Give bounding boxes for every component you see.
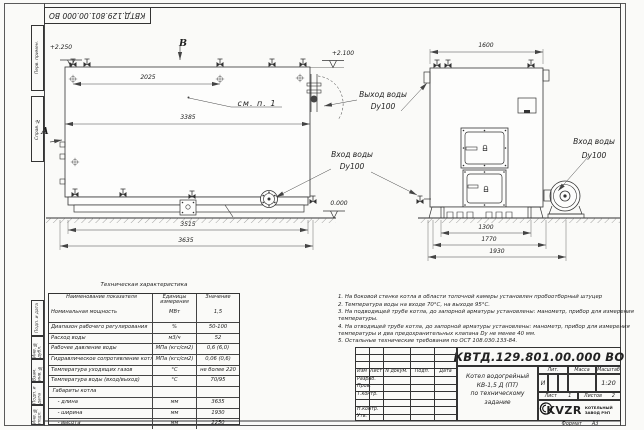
table-row: Рабочее давление водыМПа (кгс/см2)0,6 (6… <box>49 343 239 354</box>
note-line: 4. На отводящей трубе котла, до запорной… <box>338 324 634 338</box>
table-cell: Габариты котла <box>49 387 153 397</box>
format-value: А3 <box>592 421 599 427</box>
sheet-value: 1 <box>568 394 571 399</box>
lit-empty-cell-1 <box>548 374 558 392</box>
table-cell: 52 <box>197 334 239 344</box>
table-cell: 70/95 <box>197 376 239 386</box>
lit-value-cell: И <box>538 374 548 392</box>
mass-header-cell: Масса <box>568 366 596 374</box>
dim-label-1770: 1770 <box>469 237 509 243</box>
tb-col-list: Лист <box>369 370 383 375</box>
table-cell: Температура воды (вход/выход) <box>49 376 153 386</box>
note-line: 3. На подводящей трубе котла, до запорно… <box>338 309 634 323</box>
sheet-cell: Лист 1 <box>538 392 578 400</box>
table-cell: Диапазон рабочего регулирования <box>49 323 153 333</box>
table-row: Диапазон рабочего регулирования%50-100 <box>49 322 239 333</box>
callout-see-item-1: см. п. 1 <box>226 99 288 108</box>
spec-header-value: Значение <box>197 294 239 308</box>
logo-caption: КОТЕЛЬНЫЙ ЗАВОД РЭП <box>585 406 613 415</box>
dim-label-3635: 3635 <box>166 238 206 244</box>
tb-col-ndokum: N докум. <box>383 370 410 375</box>
notes-list: 1. На боковой стенке котла в области топ… <box>338 294 634 346</box>
spec-table: Наименование показателя Единицы измерени… <box>48 293 240 425</box>
water-outlet-label: Выход воды <box>352 91 414 99</box>
spec-table-title: Техническая характеристика <box>48 283 240 289</box>
table-cell: м3/ч <box>153 334 197 344</box>
sheets-value: 2 <box>612 394 615 399</box>
dim-label-1300: 1300 <box>466 225 506 231</box>
view-label-b: В <box>176 38 190 49</box>
table-cell: 1,5 <box>197 308 239 322</box>
table-row: Габариты котла <box>49 386 239 397</box>
side-view <box>46 59 343 223</box>
scale-header-cell: Масштаб <box>596 366 621 374</box>
table-row: Номинальная мощностьМВт1,5 <box>49 308 239 322</box>
table-cell <box>153 387 197 397</box>
format-label: Формат <box>562 421 582 427</box>
spec-header-units: Единицы измерения <box>153 294 197 308</box>
table-cell: 50-100 <box>197 323 239 333</box>
table-cell: °С <box>153 366 197 376</box>
fan-blower-icon <box>544 181 584 218</box>
product-name-line3: по техническому задание <box>458 390 537 407</box>
water-outlet-dn-label: Dy100 <box>352 103 414 111</box>
tb-row-nkontr: Н.контр. <box>357 408 378 413</box>
note-line: 5. Остальные технические требования по О… <box>338 338 634 345</box>
margin-box-podp-data-1: Подп. и дата <box>31 300 44 336</box>
table-cell: Рабочее давление воды <box>49 344 153 354</box>
format-strip: Формат А3 <box>540 421 620 427</box>
dim-label-2025: 2025 <box>128 75 168 81</box>
tb-row-tkontr: Т.контр. <box>357 393 378 398</box>
spec-header-name: Наименование показателя <box>49 294 153 308</box>
margin-box-inv-podl: Инв. № подл. <box>31 405 44 425</box>
sheets-cell: Листов 2 <box>578 392 621 400</box>
table-cell: °С <box>153 376 197 386</box>
table-cell: Гидравлическое сопротивление котла <box>49 355 153 365</box>
elevation-label-top-left: +2.250 <box>44 45 78 51</box>
table-row: Температура уходящих газов°Сне более 220 <box>49 365 239 376</box>
tb-col-podp: Подп. <box>410 370 434 375</box>
table-cell: Расход воды <box>49 334 153 344</box>
table-cell: 3635 <box>197 398 239 408</box>
tb-col-izm: Изм <box>355 370 369 375</box>
spec-table-header: Наименование показателя Единицы измерени… <box>49 294 239 308</box>
tb-row-utv: Утв. <box>357 415 367 420</box>
kvzr-logo-icon <box>539 401 553 416</box>
product-name-cell: Котел водогрейный КВ-1,5 Д (ПТ) по техни… <box>457 366 538 421</box>
logo-cell: KVZR КОТЕЛЬНЫЙ ЗАВОД РЭП <box>538 400 621 421</box>
sheets-label: Листов <box>584 394 602 399</box>
table-cell: - высота <box>49 419 153 429</box>
title-block-designation: КВТД.129.801.00.000 ВО <box>454 350 625 364</box>
elevation-label-zero: 0.000 <box>322 201 356 207</box>
table-cell: % <box>153 323 197 333</box>
table-cell: Номинальная мощность <box>49 308 153 322</box>
table-cell <box>197 387 239 397</box>
margin-box-inv-dubl: Инв. № дубл. <box>31 336 44 359</box>
tb-row-razrab: Разраб. <box>357 378 376 383</box>
margin-box-sprav-no: Справ. № <box>31 96 44 162</box>
table-row: Расход водым3/ч52 <box>49 333 239 344</box>
inverted-designation-box: КВТД.129.801.00.000 ВО <box>44 7 151 24</box>
table-row: - высотамм2250 <box>49 418 239 429</box>
water-inlet-right-label: Вход воды <box>566 138 622 146</box>
table-cell: мм <box>153 419 197 429</box>
dim-label-3385: 3385 <box>168 115 208 121</box>
inverted-designation-text: КВТД.129.801.00.000 ВО <box>49 11 145 20</box>
elevation-label-top-right: +2.100 <box>326 51 360 57</box>
title-block-designation-cell: КВТД.129.801.00.000 ВО <box>457 347 621 366</box>
sheet-label: Лист <box>545 394 557 399</box>
table-cell: МПа (кгс/см2) <box>153 355 197 365</box>
dim-label-1600: 1600 <box>466 43 506 49</box>
table-cell: не более 220 <box>197 366 239 376</box>
water-inlet-left-dn-label: Dy100 <box>324 163 380 171</box>
table-row: Гидравлическое сопротивление котлаМПа (к… <box>49 354 239 365</box>
table-row: Температура воды (вход/выход)°С70/95 <box>49 375 239 386</box>
lit-empty-cell-2 <box>558 374 568 392</box>
table-cell: 2250 <box>197 419 239 429</box>
water-inlet-left-label: Вход воды <box>324 151 380 159</box>
mass-value-cell <box>568 374 596 392</box>
note-line: 1. На боковой стенке котла в области топ… <box>338 294 634 301</box>
table-cell: мм <box>153 409 197 419</box>
table-cell: МПа (кгс/см2) <box>153 344 197 354</box>
tb-row-prov: Пров. <box>357 385 371 390</box>
margin-box-perv-primen: Перв. примен. <box>31 25 44 91</box>
table-cell: - ширина <box>49 409 153 419</box>
table-cell: 1930 <box>197 409 239 419</box>
lit-header-cell: Лит. <box>538 366 568 374</box>
table-cell: 0,6 (6,0) <box>197 344 239 354</box>
product-name-line1: Котел водогрейный <box>458 373 537 382</box>
dim-label-1930: 1930 <box>477 249 517 255</box>
note-line: 2. Температура воды на входе 70°С, на вы… <box>338 302 634 309</box>
table-cell: мм <box>153 398 197 408</box>
drawing-sheet: 2025 3385 3515 3635 1600 1300 1770 1930 … <box>0 0 644 430</box>
dim-label-3515: 3515 <box>168 222 208 228</box>
table-cell: Температура уходящих газов <box>49 366 153 376</box>
table-row: - ширинамм1930 <box>49 408 239 419</box>
table-cell: - длина <box>49 398 153 408</box>
table-cell: 0,06 (0,6) <box>197 355 239 365</box>
margin-box-vzam-inv: Взам. инв. № <box>31 359 44 382</box>
tb-col-data: Дата <box>434 370 457 375</box>
logo-caption-line2: ЗАВОД РЭП <box>585 411 613 415</box>
table-row: - длинамм3635 <box>49 397 239 408</box>
water-inlet-right-dn-label: Dy100 <box>566 152 622 160</box>
scale-value-cell: 1:20 <box>596 374 621 392</box>
product-name-line2: КВ-1,5 Д (ПТ) <box>458 382 537 391</box>
margin-box-podp-data-2: Подп. и дата <box>31 382 44 405</box>
table-cell: МВт <box>153 308 197 322</box>
